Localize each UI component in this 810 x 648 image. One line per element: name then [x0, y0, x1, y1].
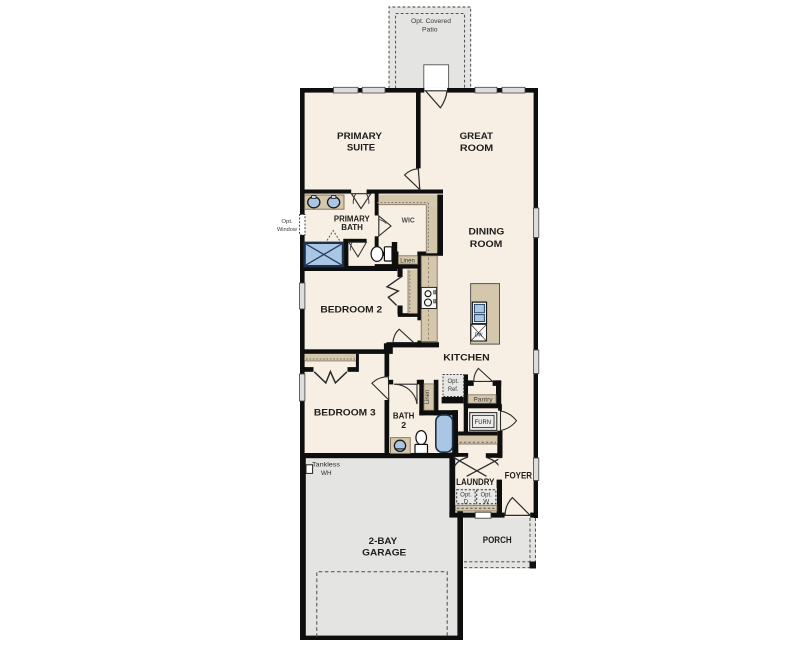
svg-text:GREAT: GREAT [460, 130, 494, 141]
svg-text:BEDROOM 3: BEDROOM 3 [314, 408, 376, 419]
svg-text:WIC: WIC [402, 217, 415, 224]
svg-text:WH: WH [321, 470, 332, 477]
svg-text:Linen: Linen [424, 389, 431, 404]
svg-text:FURN: FURN [475, 419, 491, 426]
svg-text:ROOM: ROOM [460, 142, 494, 153]
svg-text:PRIMARY: PRIMARY [337, 130, 383, 141]
svg-text:Ref.: Ref. [448, 386, 459, 393]
svg-text:2-BAY: 2-BAY [369, 536, 398, 547]
svg-text:FOYER: FOYER [505, 471, 533, 481]
svg-text:ROOM: ROOM [470, 238, 503, 249]
svg-text:PORCH: PORCH [483, 535, 512, 545]
svg-text:Pantry: Pantry [473, 397, 493, 404]
svg-text:Opt.: Opt. [447, 378, 459, 385]
svg-text:Linen: Linen [400, 258, 415, 265]
svg-text:GARAGE: GARAGE [362, 547, 407, 558]
svg-text:W: W [483, 498, 489, 505]
svg-text:DW: DW [475, 333, 483, 339]
svg-text:2: 2 [401, 421, 407, 430]
svg-text:Window: Window [277, 227, 298, 233]
svg-text:LAUNDRY: LAUNDRY [456, 477, 494, 487]
svg-text:BATH: BATH [393, 412, 415, 421]
svg-text:Opt. Covered: Opt. Covered [411, 18, 451, 25]
svg-text:BATH: BATH [341, 223, 363, 232]
svg-text:D: D [464, 498, 469, 505]
svg-text:Patio: Patio [422, 27, 438, 34]
svg-text:Tankless: Tankless [312, 462, 341, 469]
svg-text:Opt.: Opt. [281, 219, 293, 225]
svg-text:BEDROOM 2: BEDROOM 2 [320, 304, 382, 315]
svg-text:DINING: DINING [469, 225, 505, 236]
svg-text:SUITE: SUITE [347, 142, 375, 153]
svg-text:KITCHEN: KITCHEN [443, 352, 490, 363]
